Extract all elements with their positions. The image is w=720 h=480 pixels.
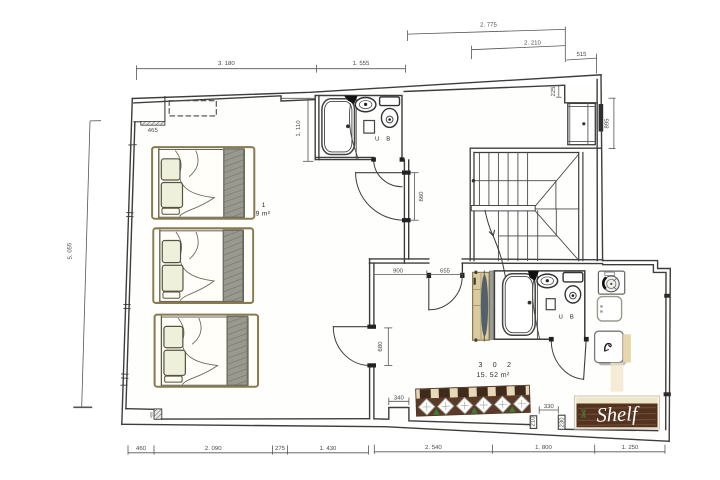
svg-text:2. 540: 2. 540 xyxy=(425,444,442,451)
svg-text:2. 090: 2. 090 xyxy=(205,445,222,452)
svg-text:U B: U B xyxy=(375,136,393,143)
svg-text:5. 055: 5. 055 xyxy=(66,242,74,260)
svg-text:230: 230 xyxy=(559,417,566,428)
svg-text:340: 340 xyxy=(394,394,405,401)
svg-text:660: 660 xyxy=(418,191,425,202)
svg-text:460: 460 xyxy=(136,445,147,452)
svg-text:330: 330 xyxy=(544,403,555,410)
svg-text:1. 555: 1. 555 xyxy=(353,60,370,67)
svg-text:2. 210: 2. 210 xyxy=(524,40,541,47)
svg-text:450: 450 xyxy=(150,412,154,418)
svg-text:3. 180: 3. 180 xyxy=(218,60,235,67)
svg-text:1. 800: 1. 800 xyxy=(535,444,552,451)
svg-text:655: 655 xyxy=(440,267,451,274)
svg-text:225: 225 xyxy=(550,86,557,97)
svg-text:895: 895 xyxy=(603,118,610,129)
svg-text:210: 210 xyxy=(529,416,536,427)
svg-text:Shelf: Shelf xyxy=(596,403,641,427)
svg-text:2. 775: 2. 775 xyxy=(480,22,497,29)
svg-text:3 0 2: 3 0 2 xyxy=(479,362,516,369)
svg-text:15. 52 m²: 15. 52 m² xyxy=(477,372,510,379)
svg-text:1. 250: 1. 250 xyxy=(622,444,639,451)
svg-text:275: 275 xyxy=(275,445,286,452)
svg-text:U B: U B xyxy=(559,314,577,321)
svg-text:1. 430: 1. 430 xyxy=(320,445,337,452)
svg-text:900: 900 xyxy=(393,267,404,274)
svg-text:515: 515 xyxy=(576,51,587,58)
svg-text:680: 680 xyxy=(377,341,384,352)
svg-text:1. 110: 1. 110 xyxy=(295,120,302,137)
svg-text:465: 465 xyxy=(148,127,159,134)
